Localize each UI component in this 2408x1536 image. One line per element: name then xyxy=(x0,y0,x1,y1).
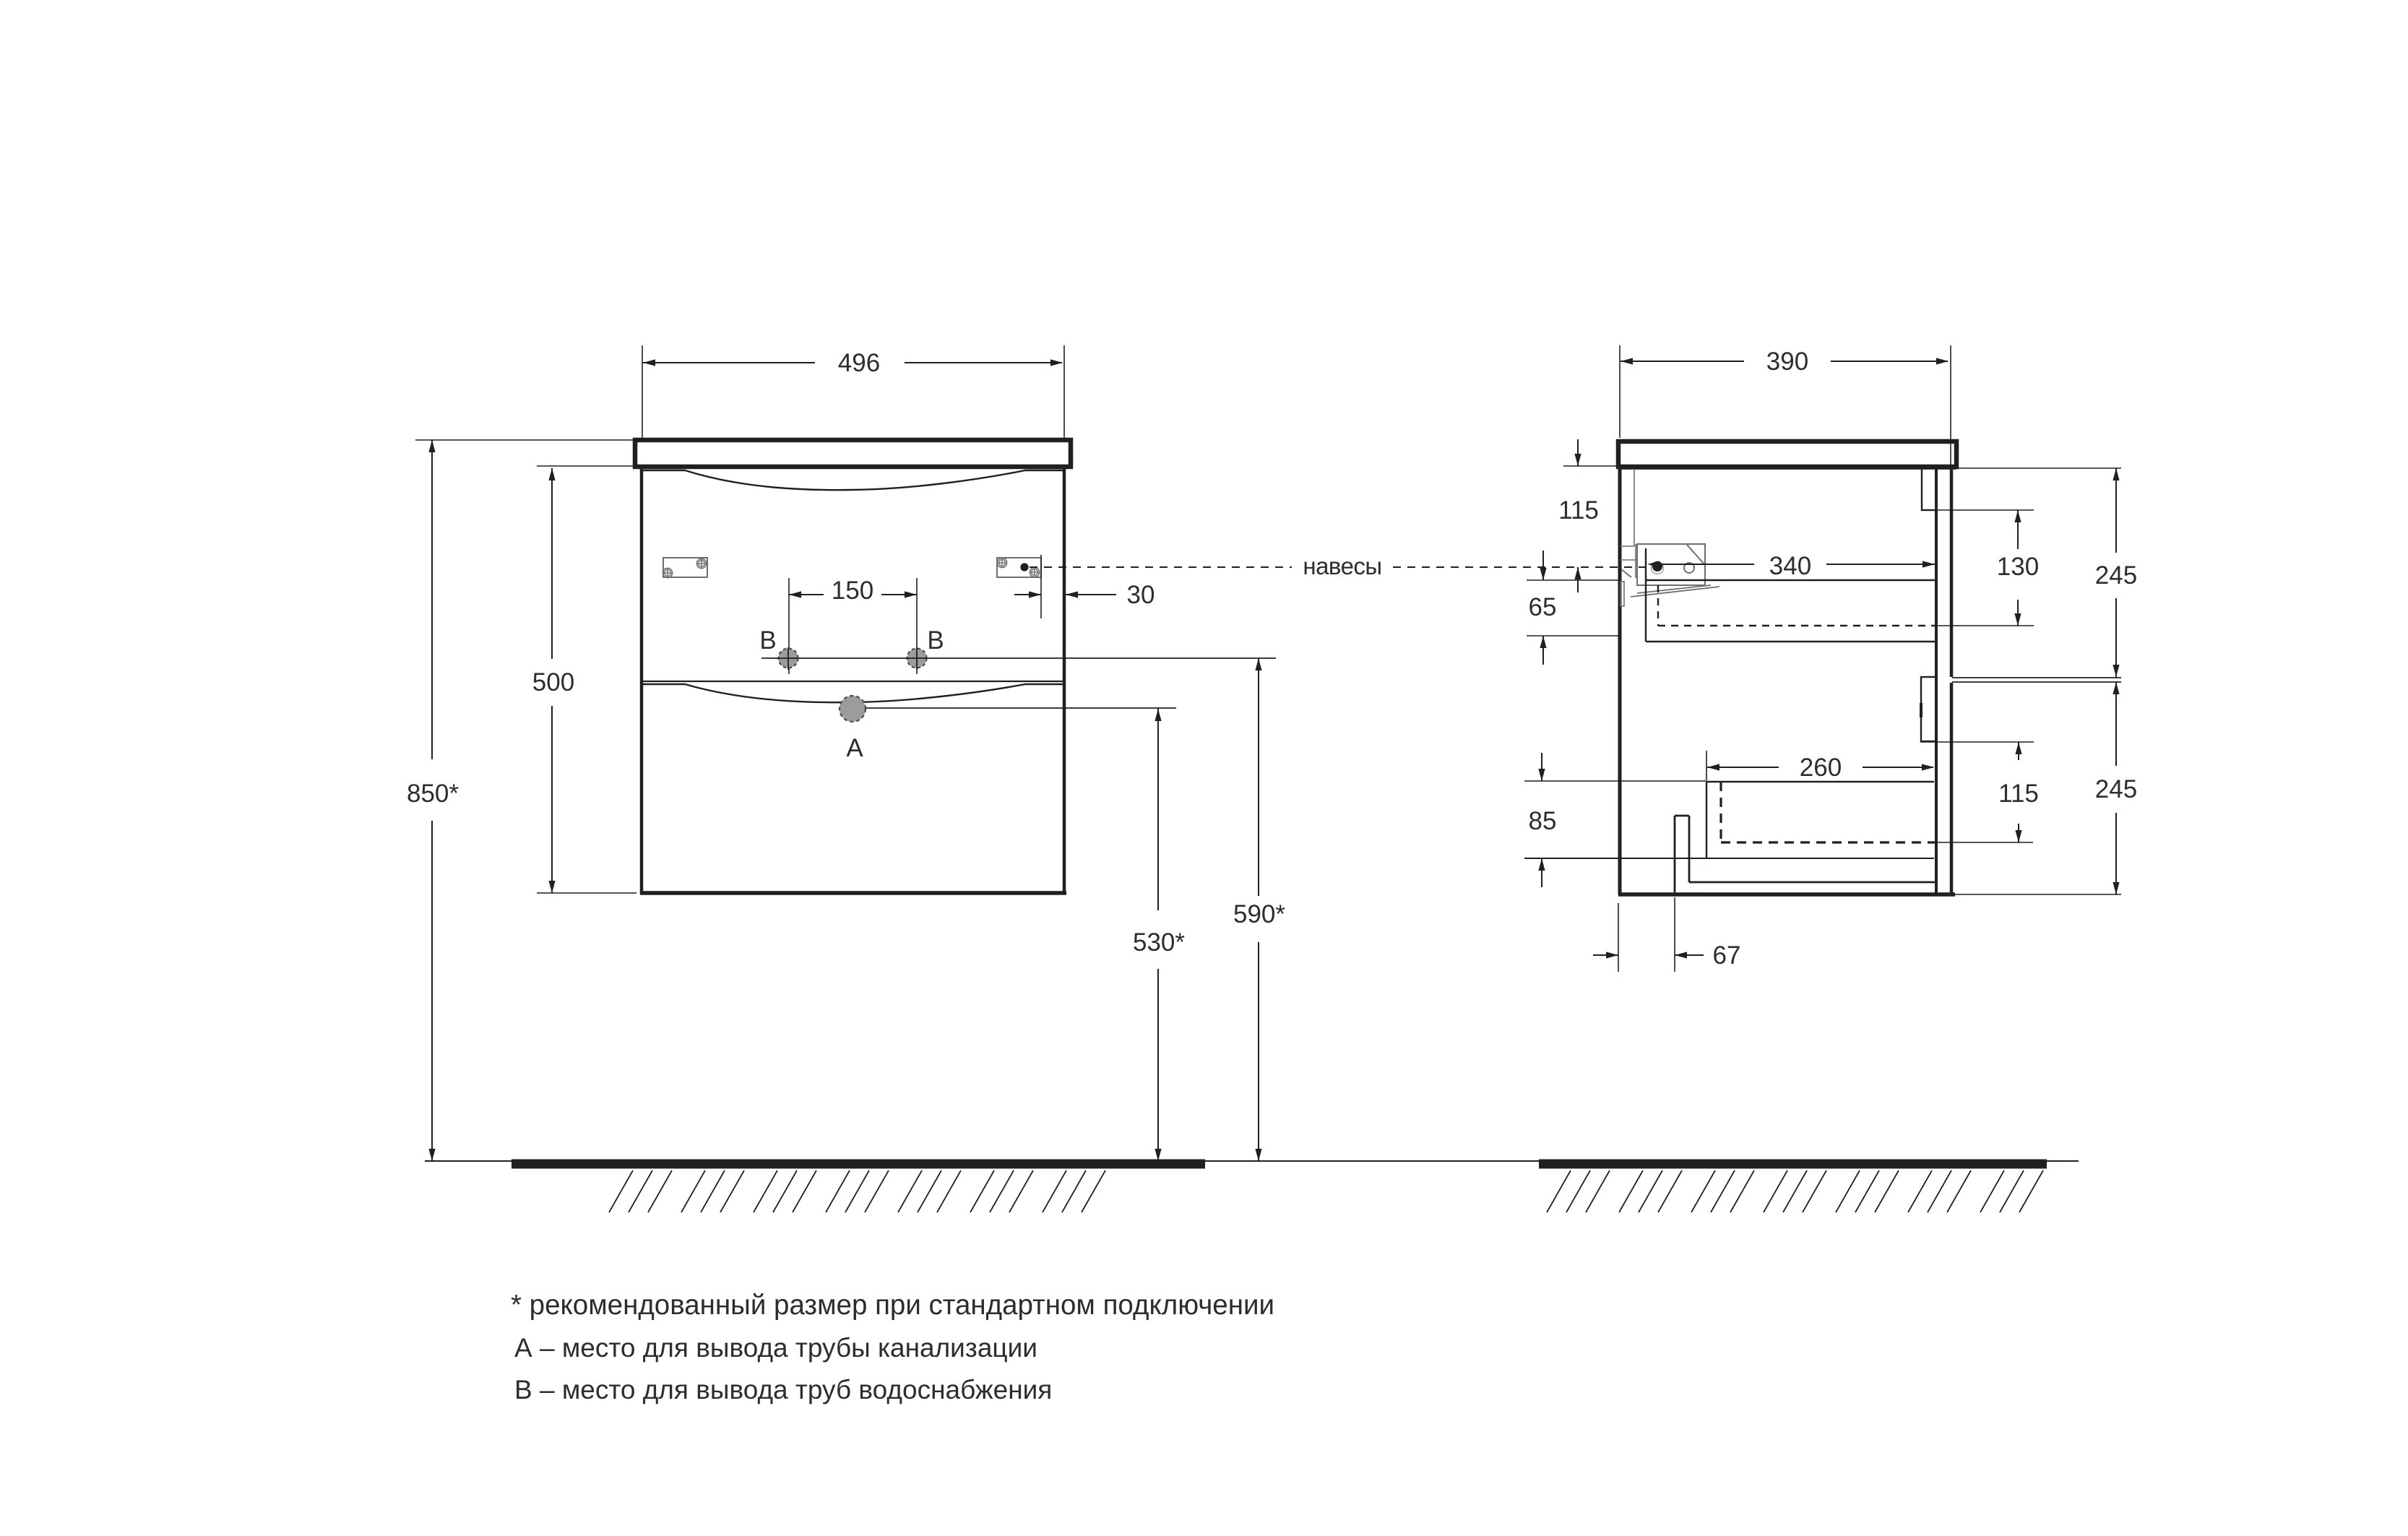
svg-text:А – место для вывода трубы кан: А – место для вывода трубы канализации xyxy=(514,1333,1037,1363)
svg-text:496: 496 xyxy=(838,349,880,377)
svg-text:150: 150 xyxy=(832,577,873,605)
svg-text:30: 30 xyxy=(1127,581,1155,609)
svg-text:390: 390 xyxy=(1766,348,1808,376)
svg-text:500: 500 xyxy=(532,668,574,696)
svg-text:B: B xyxy=(759,626,776,655)
svg-text:65: 65 xyxy=(1529,593,1557,621)
svg-text:130: 130 xyxy=(1997,553,2039,581)
svg-text:B: B xyxy=(927,626,944,655)
svg-text:340: 340 xyxy=(1769,552,1811,580)
svg-text:A: A xyxy=(846,734,863,762)
svg-text:245: 245 xyxy=(2095,561,2137,590)
svg-text:590*: 590* xyxy=(1233,900,1285,928)
svg-text:245: 245 xyxy=(2095,775,2137,803)
svg-text:530*: 530* xyxy=(1133,928,1185,957)
svg-text:115: 115 xyxy=(1558,496,1599,525)
svg-text:67: 67 xyxy=(1713,941,1741,970)
svg-text:* рекомендованный размер при с: * рекомендованный размер при стандартном… xyxy=(511,1290,1274,1321)
svg-text:навесы: навесы xyxy=(1303,553,1381,579)
svg-text:85: 85 xyxy=(1529,807,1557,835)
svg-text:850*: 850* xyxy=(407,780,459,808)
svg-text:260: 260 xyxy=(1800,754,1842,782)
svg-text:115: 115 xyxy=(1998,780,2039,808)
svg-text:В – место для вывода труб водо: В – место для вывода труб водоснабжения xyxy=(514,1375,1052,1405)
